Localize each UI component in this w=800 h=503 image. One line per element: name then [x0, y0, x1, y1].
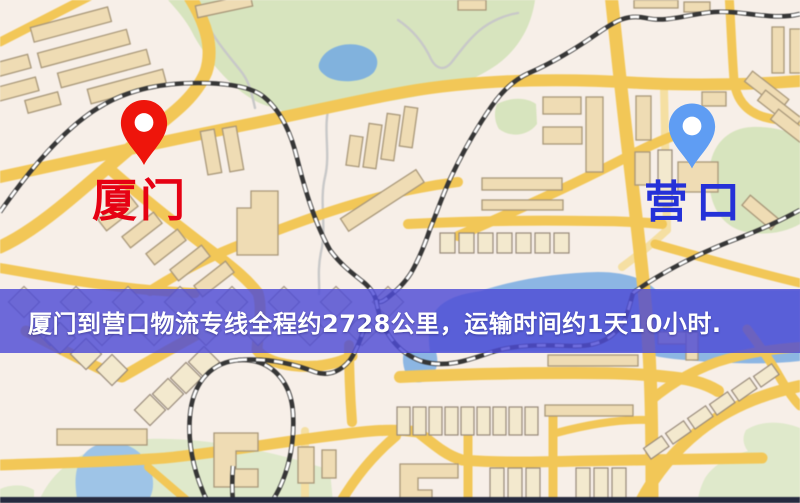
red-map-pin-icon	[119, 97, 169, 168]
bottom-edge-bar	[0, 497, 800, 503]
pin-body	[121, 100, 167, 165]
destination-pin[interactable]	[667, 102, 717, 170]
pin-hole	[683, 117, 702, 136]
destination-label: 营口	[644, 181, 748, 225]
origin-pin[interactable]	[119, 97, 169, 168]
map-viewport: 厦门 营口 厦门到营口物流专线全程约2728公里，运输时间约1天10小时.	[0, 0, 800, 503]
map-background	[0, 0, 800, 503]
blue-map-pin-icon	[667, 102, 717, 170]
pin-body	[669, 104, 715, 169]
route-info-banner: 厦门到营口物流专线全程约2728公里，运输时间约1天10小时.	[0, 289, 800, 353]
pin-hole	[135, 113, 154, 132]
route-info-text: 厦门到营口物流专线全程约2728公里，运输时间约1天10小时.	[0, 304, 722, 339]
origin-label: 厦门	[92, 178, 188, 223]
